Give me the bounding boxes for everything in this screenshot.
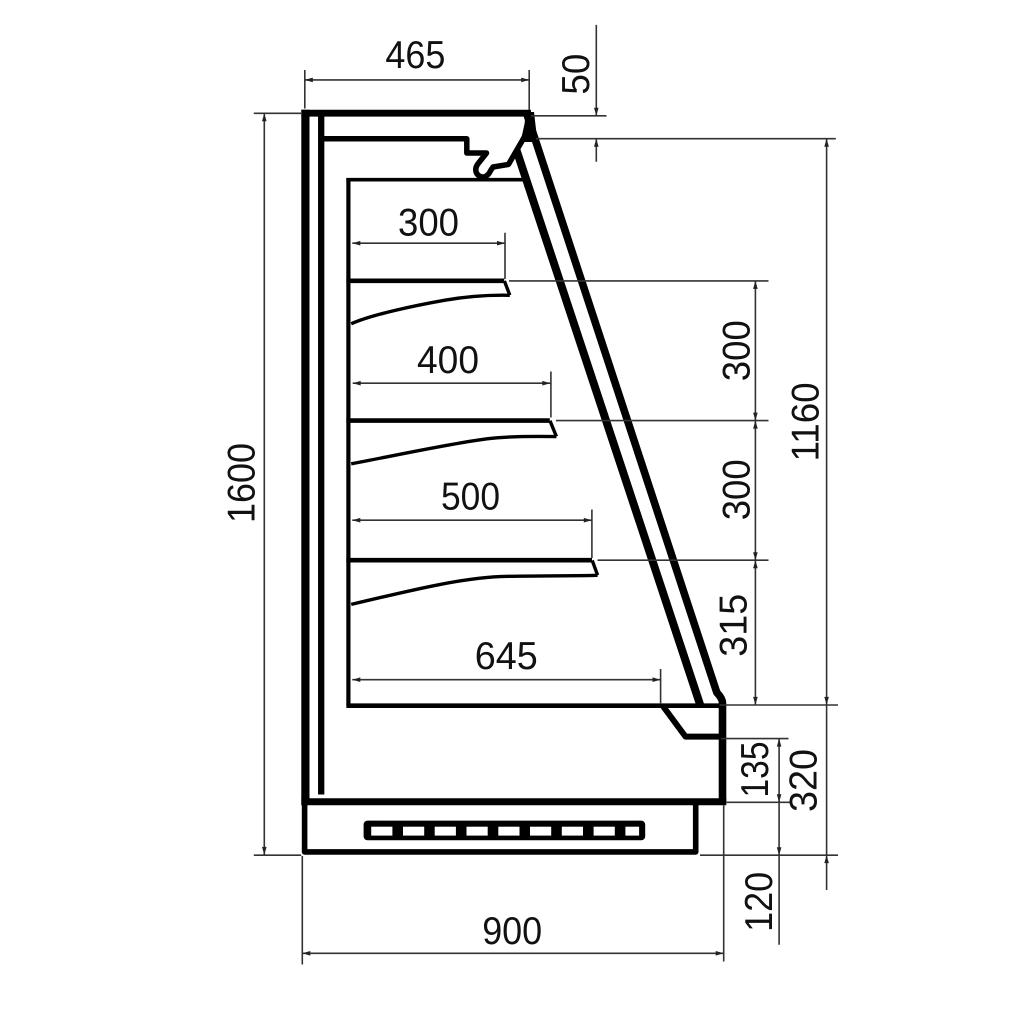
svg-text:900: 900: [482, 910, 542, 953]
svg-text:500: 500: [441, 476, 500, 519]
svg-text:465: 465: [385, 34, 445, 77]
svg-text:645: 645: [475, 635, 538, 678]
svg-text:1600: 1600: [221, 443, 264, 523]
svg-text:315: 315: [712, 594, 755, 657]
svg-text:135: 135: [734, 742, 777, 798]
svg-text:300: 300: [716, 459, 759, 520]
svg-text:50: 50: [555, 54, 598, 95]
svg-text:400: 400: [417, 339, 479, 382]
svg-text:1160: 1160: [785, 382, 828, 461]
svg-text:300: 300: [716, 320, 759, 381]
svg-text:320: 320: [783, 749, 826, 812]
svg-text:120: 120: [738, 872, 781, 932]
svg-text:300: 300: [398, 202, 459, 245]
